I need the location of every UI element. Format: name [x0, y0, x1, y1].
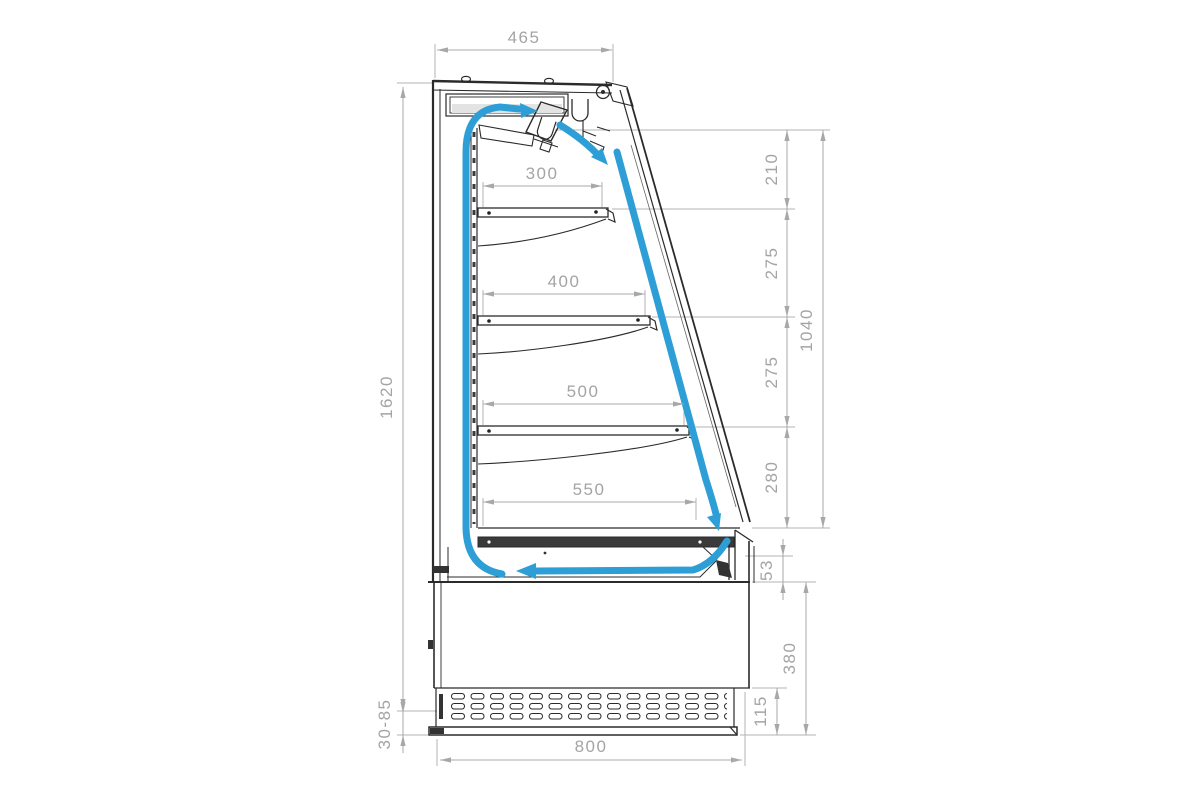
grille-end-slot — [439, 694, 443, 719]
dim-label-opening-height: 1040 — [797, 308, 816, 352]
dim-shelf-depth-2: 400 — [483, 272, 645, 297]
back-wall — [433, 80, 477, 582]
dim-label-shelf-depth-2: 400 — [548, 272, 581, 291]
ventilation-grille — [451, 693, 727, 722]
dim-label-shelf-depth-3: 500 — [567, 382, 600, 401]
dim-opening-height: 1040 — [797, 130, 826, 528]
dim-label-bumper-height: 53 — [757, 559, 776, 581]
dim-label-gap-top: 210 — [762, 153, 781, 186]
dim-label-top-depth: 465 — [508, 28, 541, 47]
dim-label-shelf-depth-4: 550 — [573, 480, 606, 499]
shelf-3 — [478, 426, 696, 464]
display-case-section-drawing: 465 1620 30-85 800 300 400 — [0, 0, 1200, 800]
dim-label-gap-3: 280 — [762, 461, 781, 494]
shelf-bracket — [478, 327, 648, 354]
dim-shelf-gaps: 210 275 275 280 — [762, 130, 790, 528]
glass-front — [620, 88, 750, 522]
bottom-plate — [429, 727, 737, 735]
dim-label-feet-range: 30-85 — [375, 699, 394, 750]
dim-feet-range: 30-85 — [375, 696, 406, 753]
glass-inner-pane — [620, 90, 743, 522]
dim-label-total-height: 1620 — [377, 375, 396, 419]
canopy-top-line — [433, 81, 612, 85]
dim-label-base-depth: 800 — [575, 737, 608, 756]
dim-bumper-height: 53 — [757, 539, 786, 600]
lamp-tube — [572, 99, 588, 121]
dim-label-shelf-depth-1: 300 — [526, 164, 559, 183]
shelf-2 — [478, 316, 657, 354]
dim-base-depth: 800 — [440, 737, 742, 763]
shelf-1 — [478, 208, 615, 246]
dim-base-height: 380 — [780, 582, 809, 735]
dim-shelf-depth-4: 550 — [483, 480, 696, 505]
front-bumper — [703, 530, 754, 688]
dim-total-height: 1620 — [377, 87, 406, 710]
base-hinge — [428, 640, 433, 649]
airflow-air-curtain — [617, 152, 716, 514]
wall-bottom-bracket — [433, 566, 449, 573]
dim-top-depth: 465 — [437, 28, 612, 53]
dim-label-base-height: 380 — [780, 642, 799, 675]
cabinet-structure — [428, 76, 754, 735]
dim-label-grille-height: 115 — [751, 695, 770, 727]
extension-lines — [397, 44, 830, 766]
base-unit — [428, 582, 750, 735]
canopy — [433, 76, 633, 153]
air-deflector-panel — [479, 125, 534, 146]
shelf-bracket — [478, 437, 687, 464]
dimension-annotations: 465 1620 30-85 800 300 400 — [375, 28, 826, 763]
dim-grille-height: 115 — [751, 688, 780, 735]
dim-shelf-depth-3: 500 — [483, 382, 684, 407]
shelf-bracket — [478, 219, 606, 246]
dim-label-gap-1: 275 — [762, 247, 781, 280]
dim-label-gap-2: 275 — [762, 356, 781, 389]
dim-shelf-depth-1: 300 — [483, 164, 602, 189]
drawing-canvas: 465 1620 30-85 800 300 400 — [0, 0, 1200, 800]
